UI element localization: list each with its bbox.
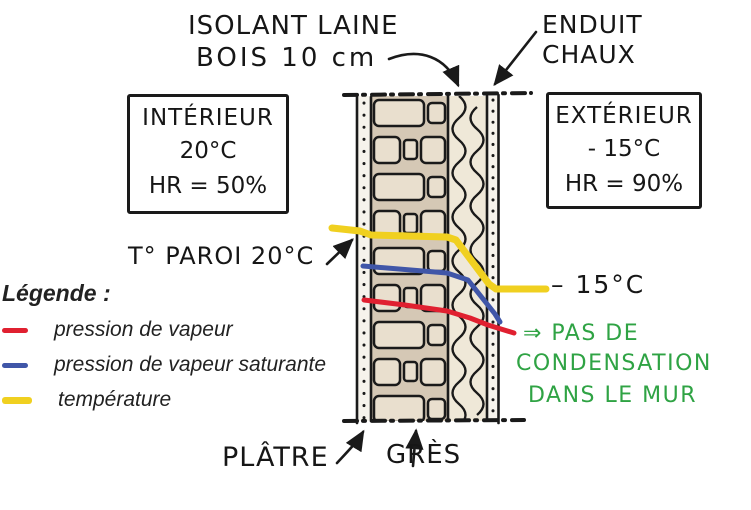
exterior-humidity: HR = 90% bbox=[549, 171, 699, 197]
conclusion-line3: DANS LE MUR bbox=[528, 383, 697, 408]
legend-item-label: pression de vapeur saturante bbox=[54, 353, 326, 377]
exterior-title: EXTÉRIEUR bbox=[549, 103, 699, 129]
legend: Légende : pression de vapeur pression de… bbox=[2, 280, 332, 412]
legend-item-saturation-pressure: pression de vapeur saturante bbox=[2, 353, 332, 377]
conclusion-line2: CONDENSATION bbox=[516, 351, 712, 376]
legend-item-label: température bbox=[58, 388, 171, 412]
legend-item-vapor-pressure: pression de vapeur bbox=[2, 318, 332, 342]
interior-conditions-box: INTÉRIEUR 20°C HR = 50% bbox=[127, 94, 289, 214]
stone-pattern bbox=[374, 100, 445, 422]
exterior-temperature: - 15°C bbox=[549, 136, 699, 162]
wall-section-drawing bbox=[0, 0, 751, 510]
legend-title: Légende : bbox=[2, 280, 332, 307]
arrow-to-plaster-icon bbox=[337, 432, 363, 463]
legend-item-temperature: température bbox=[2, 388, 332, 412]
legend-item-label: pression de vapeur bbox=[54, 318, 233, 342]
interior-title: INTÉRIEUR bbox=[130, 105, 286, 131]
interior-temperature: 20°C bbox=[130, 138, 286, 164]
vapor-pressure-swatch-icon bbox=[2, 328, 28, 333]
arrow-to-insulation-icon bbox=[389, 54, 458, 85]
sandstone-label: GRÈS bbox=[386, 441, 461, 470]
saturation-pressure-swatch-icon bbox=[2, 363, 28, 368]
plaster-layer bbox=[357, 96, 371, 421]
arrow-to-render-icon bbox=[495, 32, 536, 84]
render-label-line1: ENDUIT bbox=[542, 11, 643, 39]
exterior-conditions-box: EXTÉRIEUR - 15°C HR = 90% bbox=[546, 92, 702, 209]
insulation-label-line2: BOIS 10 cm bbox=[196, 44, 377, 73]
interior-humidity: HR = 50% bbox=[130, 173, 286, 199]
outside-surface-temp-label: – 15°C bbox=[551, 271, 645, 299]
temperature-swatch-icon bbox=[2, 397, 32, 404]
conclusion-line1: ⇒ PAS DE bbox=[523, 321, 639, 346]
wall-condensation-diagram: ISOLANT LAINE BOIS 10 cm ENDUIT CHAUX IN… bbox=[0, 0, 751, 510]
arrow-to-wall-surface-icon bbox=[327, 240, 352, 264]
insulation-label-line1: ISOLANT LAINE bbox=[188, 12, 399, 41]
wall-surface-temp-label: T° PAROI 20°C bbox=[128, 243, 314, 269]
render-label-line2: CHAUX bbox=[542, 41, 636, 69]
plaster-label: PLÂTRE bbox=[222, 443, 329, 473]
